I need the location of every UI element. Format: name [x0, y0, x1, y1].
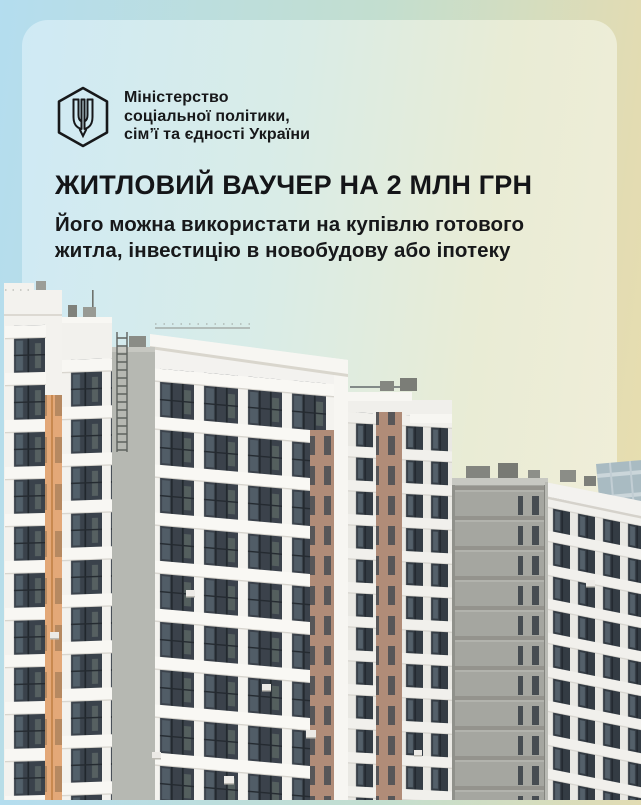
ministry-brand: Міністерство соціальної політики, сім’ї … — [55, 86, 595, 148]
tryzub-hexagon-icon — [55, 86, 111, 148]
mid-right-building — [348, 378, 452, 800]
ministry-name: Міністерство соціальної політики, сім’ї … — [124, 89, 310, 145]
poster: { "colors": { "frame_gradient": ["#b4dde… — [0, 0, 641, 800]
central-building — [150, 324, 350, 800]
subtitle-line: житла, інвестицію в новобудову або іпоте… — [55, 238, 595, 264]
ministry-line: Міністерство — [124, 89, 310, 108]
left-tower — [4, 281, 62, 800]
subtitle-line: Його можна використати на купівлю готово… — [55, 212, 595, 238]
grey-block — [112, 332, 155, 800]
left-mid-building — [60, 290, 112, 800]
ministry-line: сім’ї та єдності України — [124, 126, 310, 145]
subtitle: Його можна використати на купівлю готово… — [55, 212, 595, 264]
right-front-building — [545, 470, 641, 800]
headline: ЖИТЛОВИЙ ВАУЧЕР НА 2 МЛН ГРН — [55, 170, 595, 200]
apartment-buildings-photo — [0, 280, 641, 800]
right-grey-building — [448, 463, 548, 800]
ministry-line: соціальної політики, — [124, 108, 310, 127]
